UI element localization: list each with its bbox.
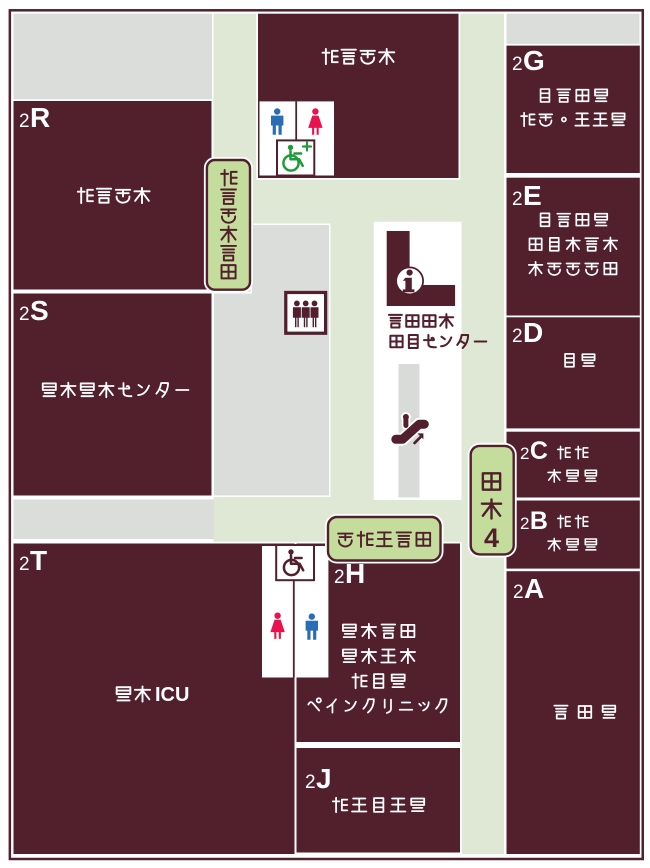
svg-text:D: D — [523, 317, 543, 348]
svg-text:2: 2 — [19, 111, 30, 132]
svg-text:G: G — [523, 45, 545, 76]
svg-text:A: A — [524, 573, 544, 604]
svg-text:S: S — [30, 295, 49, 326]
svg-text:2: 2 — [305, 772, 316, 793]
svg-text:2: 2 — [19, 554, 30, 575]
svg-text:2: 2 — [512, 54, 523, 75]
svg-text:2: 2 — [512, 326, 523, 347]
svg-text:T: T — [30, 545, 47, 576]
svg-text:E: E — [523, 180, 542, 211]
svg-text:2: 2 — [520, 514, 529, 533]
svg-text:2: 2 — [520, 444, 529, 463]
svg-text:2: 2 — [513, 582, 524, 603]
svg-text:2: 2 — [512, 189, 523, 210]
svg-text:R: R — [30, 102, 50, 133]
svg-text:2: 2 — [334, 567, 345, 588]
svg-text:4: 4 — [484, 523, 499, 553]
svg-text:B: B — [530, 507, 548, 535]
svg-text:C: C — [530, 437, 548, 465]
svg-text:2: 2 — [19, 304, 30, 325]
svg-text:J: J — [316, 763, 332, 794]
svg-text:ICU: ICU — [155, 684, 189, 706]
